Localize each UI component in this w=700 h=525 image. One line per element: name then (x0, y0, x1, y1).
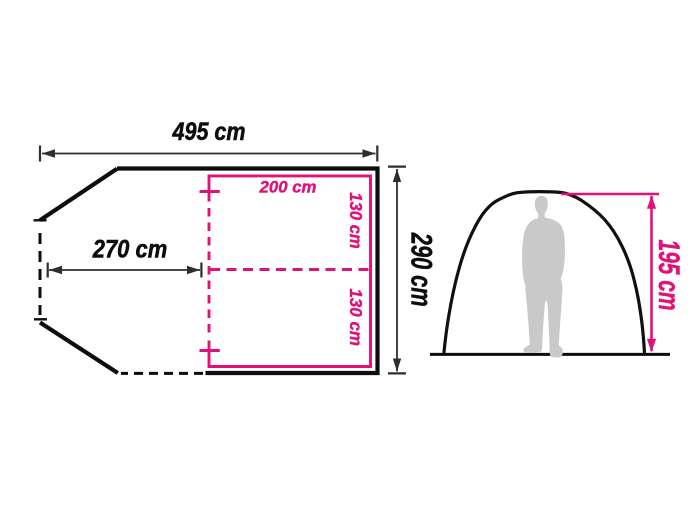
svg-text:195 cm: 195 cm (652, 240, 685, 311)
svg-text:200 cm: 200 cm (259, 177, 317, 196)
svg-text:495 cm: 495 cm (172, 118, 246, 146)
svg-text:130 cm: 130 cm (346, 288, 366, 346)
svg-text:290 cm: 290 cm (404, 232, 437, 307)
svg-text:130 cm: 130 cm (346, 192, 366, 249)
svg-text:270 cm: 270 cm (92, 236, 167, 264)
